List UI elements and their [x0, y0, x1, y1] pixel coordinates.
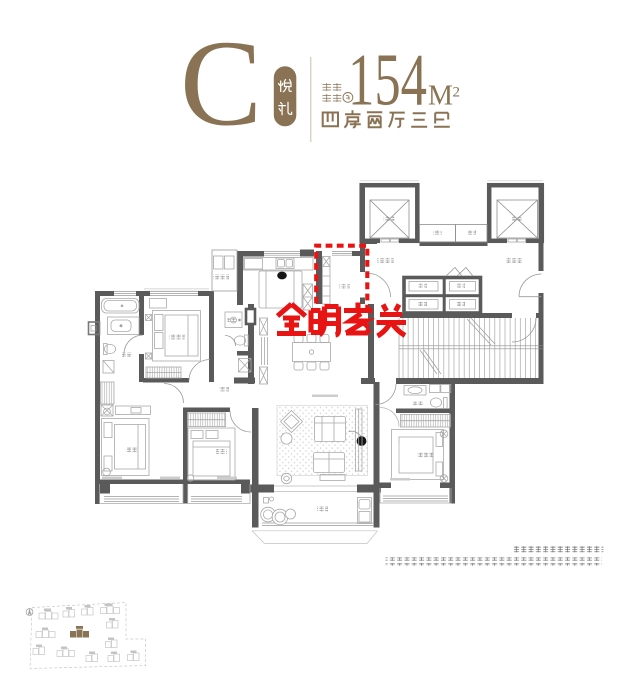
svg-text:M: M — [428, 81, 453, 112]
svg-text:154: 154 — [348, 40, 427, 122]
svg-text:C: C — [180, 15, 262, 152]
svg-text:2: 2 — [453, 85, 461, 101]
